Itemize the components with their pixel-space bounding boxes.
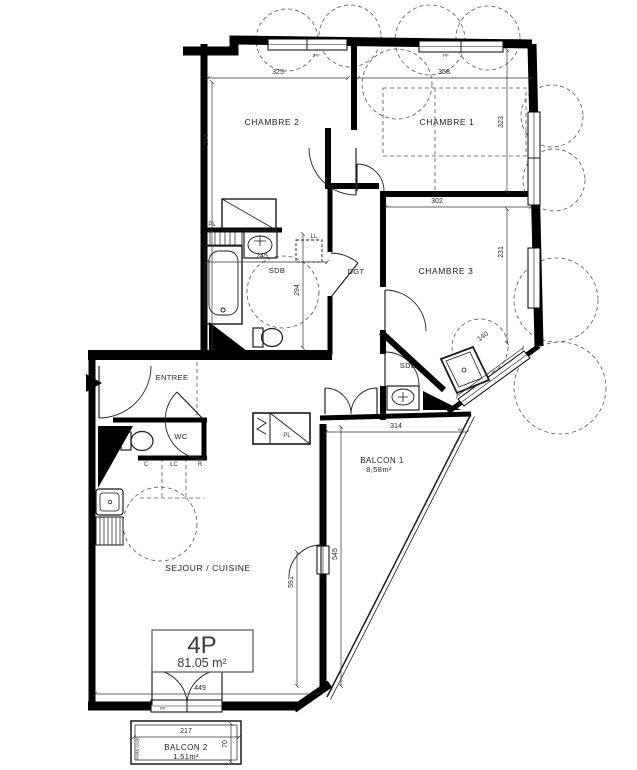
dim-balcon2-width: 217 xyxy=(180,728,192,735)
window-sejour-right xyxy=(317,546,329,574)
dim-sdb-width: 245 xyxy=(256,253,268,260)
window-chambre1 xyxy=(419,41,503,52)
sejour-balcony-door xyxy=(289,545,321,577)
room-label-wc: WC xyxy=(174,432,187,441)
closet-hall xyxy=(253,413,310,444)
tag-lc: LC xyxy=(170,462,178,468)
tag-pf-sejour: PF xyxy=(160,706,166,711)
dim-chambre1-width: 358 xyxy=(438,69,450,76)
room-label-balcon1: BALCON 1 xyxy=(360,456,404,465)
dim-chambre1-height: 323 xyxy=(498,116,505,128)
dim-balcon1-height: 545 xyxy=(332,548,339,560)
sdb-toilet xyxy=(253,328,283,347)
dim-sejour-width: 449 xyxy=(194,685,206,692)
room-label-chambre3: CHAMBRE 3 xyxy=(419,266,474,276)
sde-sink xyxy=(387,386,419,410)
floor-plan-svg: 325 374 358 323 302 231 245 294 314 545 … xyxy=(0,0,637,770)
tag-ll: LL xyxy=(311,234,318,240)
room-label-chambre2: CHAMBRE 2 xyxy=(245,117,300,127)
window-swing-arcs xyxy=(256,5,606,434)
kitchen-duct xyxy=(98,426,133,488)
window-chambre2 xyxy=(268,39,347,50)
tag-pl-hall: PL xyxy=(283,433,291,439)
balcon1-area: 8,58m² xyxy=(366,465,392,474)
radiator xyxy=(205,232,242,245)
sde-duct xyxy=(423,391,461,410)
dim-balcon2-depth: 70 xyxy=(222,740,229,748)
dim-sdb-height: 294 xyxy=(294,284,301,296)
kitchen-sink xyxy=(96,489,123,515)
dim-sejour-height: 591 xyxy=(288,576,295,588)
tag-r: R xyxy=(198,462,203,468)
washing-machine xyxy=(296,240,322,262)
unit-area: 81.05 m² xyxy=(177,656,226,670)
room-label-sde: SDE xyxy=(400,361,417,370)
floor-plan-page: 325 374 358 323 302 231 245 294 314 545 … xyxy=(0,0,637,770)
unit-info-box: 4P 81.05 m² xyxy=(152,630,253,672)
dim-chambre3-width: 302 xyxy=(431,198,443,205)
entry-door xyxy=(86,366,151,418)
room-label-chambre1: CHAMBRE 1 xyxy=(420,117,475,127)
tag-pl-chambre2: PL xyxy=(208,222,216,228)
room-label-entree: ENTREE xyxy=(156,373,189,382)
tag-c: C xyxy=(144,462,149,468)
tag-pf-chambre1: PF xyxy=(443,53,449,58)
room-label-balcon2: BALCON 2 xyxy=(164,743,208,752)
dim-sde-window: 140 xyxy=(476,330,490,343)
wc-door xyxy=(165,392,204,459)
kitchen-counter xyxy=(96,517,123,545)
tag-pf-chambre2: PF xyxy=(314,53,320,58)
dim-chambre2-width: 325 xyxy=(272,69,284,76)
closet-chambre2 xyxy=(222,199,276,230)
sdb-duct xyxy=(209,322,247,351)
balcony1-french-door xyxy=(325,388,377,414)
dim-chambre3-height: 231 xyxy=(498,246,505,258)
room-label-dgt: DGT xyxy=(347,267,364,276)
tag-ec: ec xyxy=(458,427,464,432)
bathtub xyxy=(205,246,242,324)
room-label-sdb: SDB xyxy=(269,266,286,275)
room-label-sejour: SEJOUR / CUISINE xyxy=(165,563,251,573)
chambre3-door xyxy=(385,290,426,331)
dim-balcon1-width: 314 xyxy=(390,423,402,430)
balcon2-area: 1,51m² xyxy=(173,752,199,761)
window-right-chambre1 xyxy=(528,112,540,205)
dim-chambre2-height: 374 xyxy=(203,134,210,146)
window-right-chambre3 xyxy=(528,248,540,308)
tag-pare-vue: PARE-VUE xyxy=(135,737,140,760)
unit-type: 4P xyxy=(187,632,216,659)
